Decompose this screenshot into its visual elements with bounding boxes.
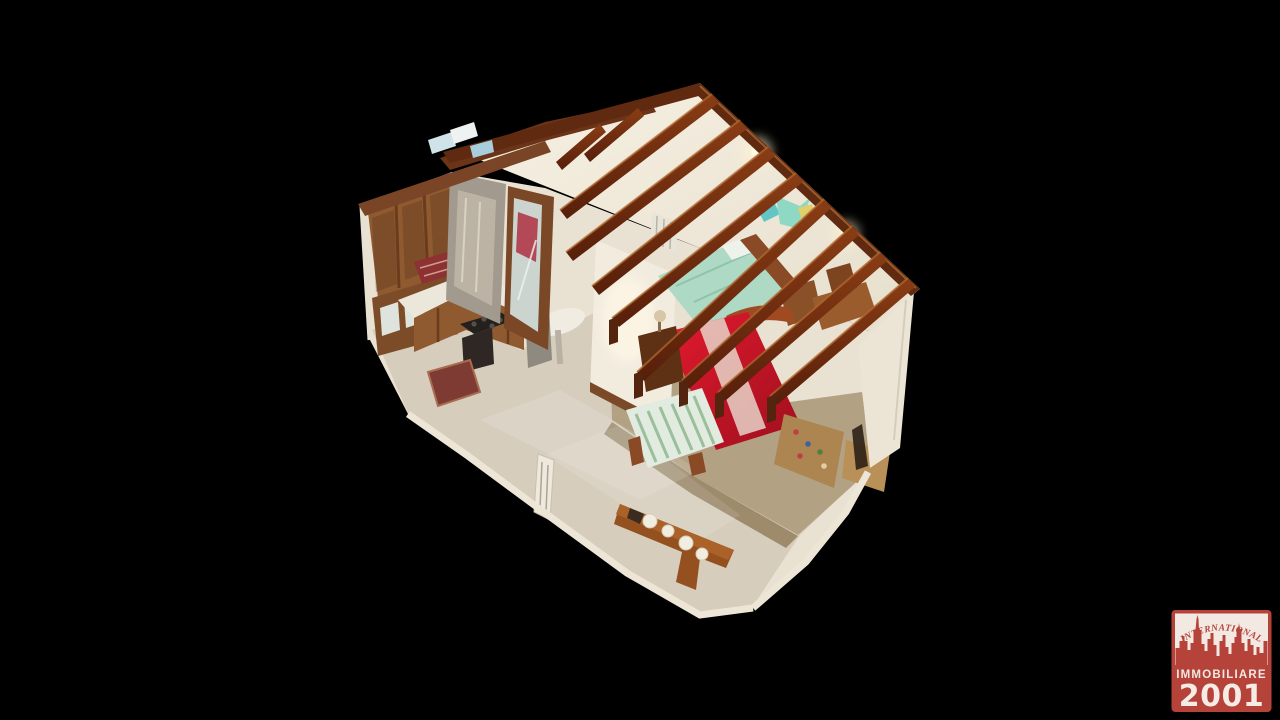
agency-logo: INTERNATIONAL IMMOBILIARE 2001 <box>1171 610 1272 712</box>
ceramic-bowl-2 <box>696 548 708 560</box>
lamp-shade <box>654 310 666 322</box>
cabinet-panel <box>372 210 397 292</box>
rafter-post-4 <box>715 391 724 419</box>
dollhouse-3d-view[interactable] <box>0 0 1280 720</box>
ceramic-plate <box>643 514 657 528</box>
rafter-post-3 <box>679 379 688 407</box>
rafter-post-5 <box>767 395 776 423</box>
tapestry-dot-2 <box>805 441 811 447</box>
tapestry-dot-3 <box>817 449 823 455</box>
tapestry-dot <box>793 429 799 435</box>
ceramic-bowl <box>662 525 674 537</box>
hutch-glass-door <box>380 302 400 336</box>
logo-year-text: 2001 <box>1179 679 1265 712</box>
shower-glass <box>454 190 496 306</box>
agency-logo-watermark: INTERNATIONAL IMMOBILIARE 2001 <box>1171 610 1272 712</box>
tapestry-dot-4 <box>797 453 803 459</box>
ceramic-plate-2 <box>679 536 693 550</box>
burner-3 <box>489 323 494 328</box>
tapestry-dot-5 <box>821 463 827 469</box>
burner <box>471 321 476 326</box>
rafter-post-2 <box>634 371 643 399</box>
rafter-post <box>609 317 618 345</box>
viewer-stage: INTERNATIONAL IMMOBILIARE 2001 <box>0 0 1280 720</box>
